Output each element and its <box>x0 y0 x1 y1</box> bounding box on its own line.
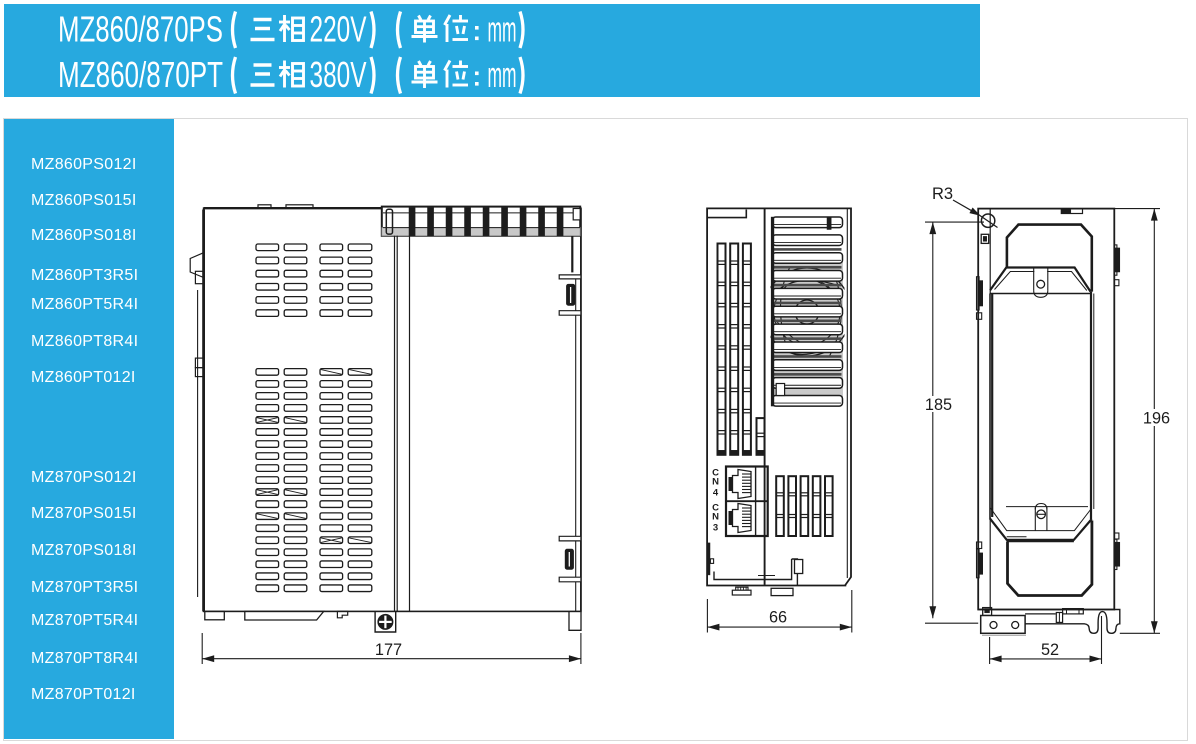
svg-text:R3: R3 <box>932 185 953 203</box>
svg-text:185: 185 <box>925 396 952 414</box>
svg-text:N: N <box>712 512 719 523</box>
svg-text:52: 52 <box>1041 641 1059 659</box>
svg-text:177: 177 <box>375 641 402 659</box>
svg-text:4: 4 <box>713 488 719 499</box>
svg-text:196: 196 <box>1143 410 1170 428</box>
svg-text:66: 66 <box>769 609 787 627</box>
svg-text:3: 3 <box>713 523 718 534</box>
svg-text:N: N <box>712 477 719 488</box>
